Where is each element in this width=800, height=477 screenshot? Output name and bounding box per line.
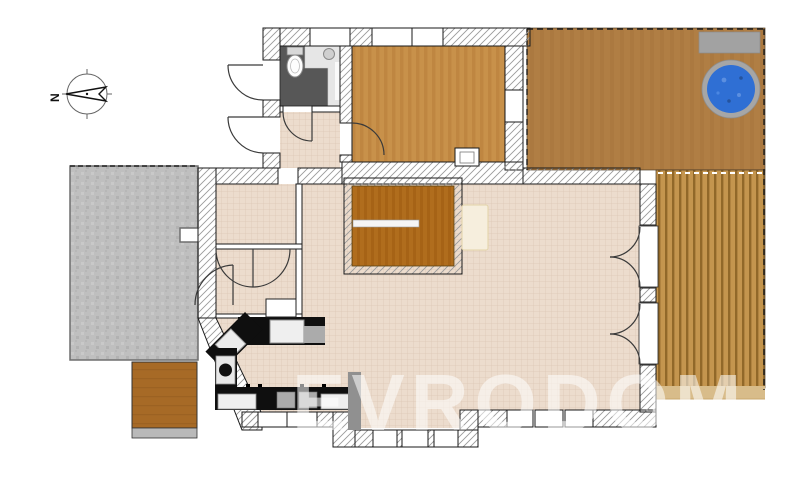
window — [258, 412, 287, 427]
bedroom-floor — [352, 46, 505, 162]
floor-plan-drawing: N EVRODOM — [0, 0, 800, 477]
oven — [270, 320, 304, 343]
cooker-hood — [266, 299, 296, 317]
entry-porch — [132, 362, 197, 438]
compass-icon: N — [48, 69, 112, 119]
toilet-fixture — [287, 47, 303, 77]
floor-plan-canvas: N EVRODOM — [0, 0, 800, 477]
hot-tub-water — [707, 65, 755, 113]
window — [412, 28, 443, 46]
partition-vertical — [296, 184, 302, 318]
staircase — [344, 178, 462, 274]
partition-horizontal — [216, 244, 302, 249]
deck-bench — [699, 32, 760, 53]
upper-terrace-deck — [527, 28, 765, 170]
porch-step — [132, 428, 197, 438]
chimney-box — [455, 148, 479, 166]
counter-gray-module — [304, 326, 325, 343]
hob-burner — [219, 364, 232, 377]
dishwasher — [218, 394, 256, 409]
bathroom — [280, 46, 340, 106]
watermark-text: EVRODOM — [292, 358, 747, 447]
window — [310, 28, 350, 46]
entry-door-1 — [228, 65, 263, 100]
window — [372, 28, 412, 46]
paved-patio — [70, 166, 198, 360]
hot-tub — [702, 60, 760, 118]
stair-handrail — [353, 220, 419, 227]
entry-door-2 — [228, 117, 263, 153]
sink-fixture — [324, 49, 335, 60]
hallway-floor — [280, 112, 340, 168]
window — [505, 90, 523, 122]
bedroom — [352, 46, 505, 162]
sideboard — [462, 205, 488, 250]
compass-north-label: N — [48, 93, 62, 102]
